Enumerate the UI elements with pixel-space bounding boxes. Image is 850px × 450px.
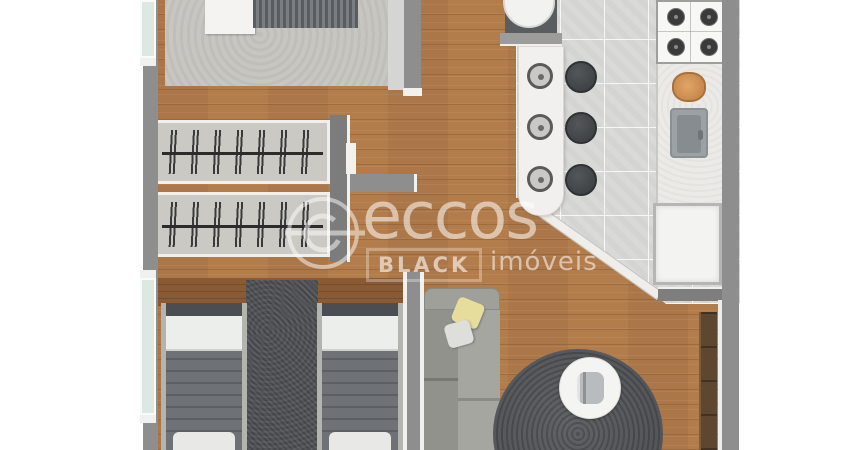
right-exterior-wall xyxy=(722,0,739,450)
faucet xyxy=(698,130,703,140)
bed-foot-throw xyxy=(173,432,235,450)
wall-cap xyxy=(140,58,156,66)
burner xyxy=(700,38,718,56)
bread-board xyxy=(672,72,706,102)
bed-sheet xyxy=(322,316,398,351)
bed-foot-throw xyxy=(329,432,391,450)
watermark-imoveis-text: imóveis xyxy=(490,247,598,277)
bar-stool xyxy=(565,164,597,196)
bed-sheet xyxy=(166,316,242,351)
bar-stool xyxy=(565,112,597,144)
door-jamb xyxy=(403,88,422,96)
floor-plan-render: eccos BLACK imóveis xyxy=(0,0,850,450)
single-bed-2 xyxy=(317,303,403,450)
window-top-left xyxy=(140,0,156,58)
burner xyxy=(667,38,685,56)
double-bed-mattress xyxy=(205,0,255,34)
bathroom-floor-edge xyxy=(388,0,404,90)
closet-rail xyxy=(162,152,323,155)
window-bottom-left xyxy=(140,278,156,415)
refrigerator xyxy=(653,203,722,285)
wall-core xyxy=(407,272,420,450)
burner xyxy=(700,8,718,26)
kitchen-sink xyxy=(670,108,708,158)
wall-cap xyxy=(140,270,156,278)
double-bed-blanket xyxy=(253,0,358,28)
tv-rack xyxy=(699,312,717,450)
vase xyxy=(577,372,604,404)
bed-headboard xyxy=(322,303,398,316)
bed-headboard xyxy=(166,303,242,316)
cooktop xyxy=(656,0,726,64)
bar-stool xyxy=(565,61,597,93)
bed-blanket xyxy=(166,351,242,432)
single-bed-1 xyxy=(161,303,247,450)
burner xyxy=(667,8,685,26)
door-jamb xyxy=(346,143,356,174)
watermark-sub-brand: BLACK xyxy=(366,248,482,282)
clothes-rack-1 xyxy=(155,120,330,184)
place-setting xyxy=(527,63,553,89)
eccos-circle-e-logo-icon xyxy=(283,192,367,276)
wall-edge-highlight xyxy=(718,300,722,450)
wall-cap xyxy=(140,415,156,423)
place-setting xyxy=(527,114,553,140)
wall-stub xyxy=(500,33,562,46)
bed-blanket xyxy=(322,351,398,432)
hallway-wall xyxy=(404,0,421,92)
watermark-brand-text: eccos xyxy=(362,184,537,249)
runner-rug xyxy=(246,280,318,450)
bedroom-living-wall xyxy=(403,272,424,450)
kitchen-wall-stub xyxy=(658,287,722,301)
